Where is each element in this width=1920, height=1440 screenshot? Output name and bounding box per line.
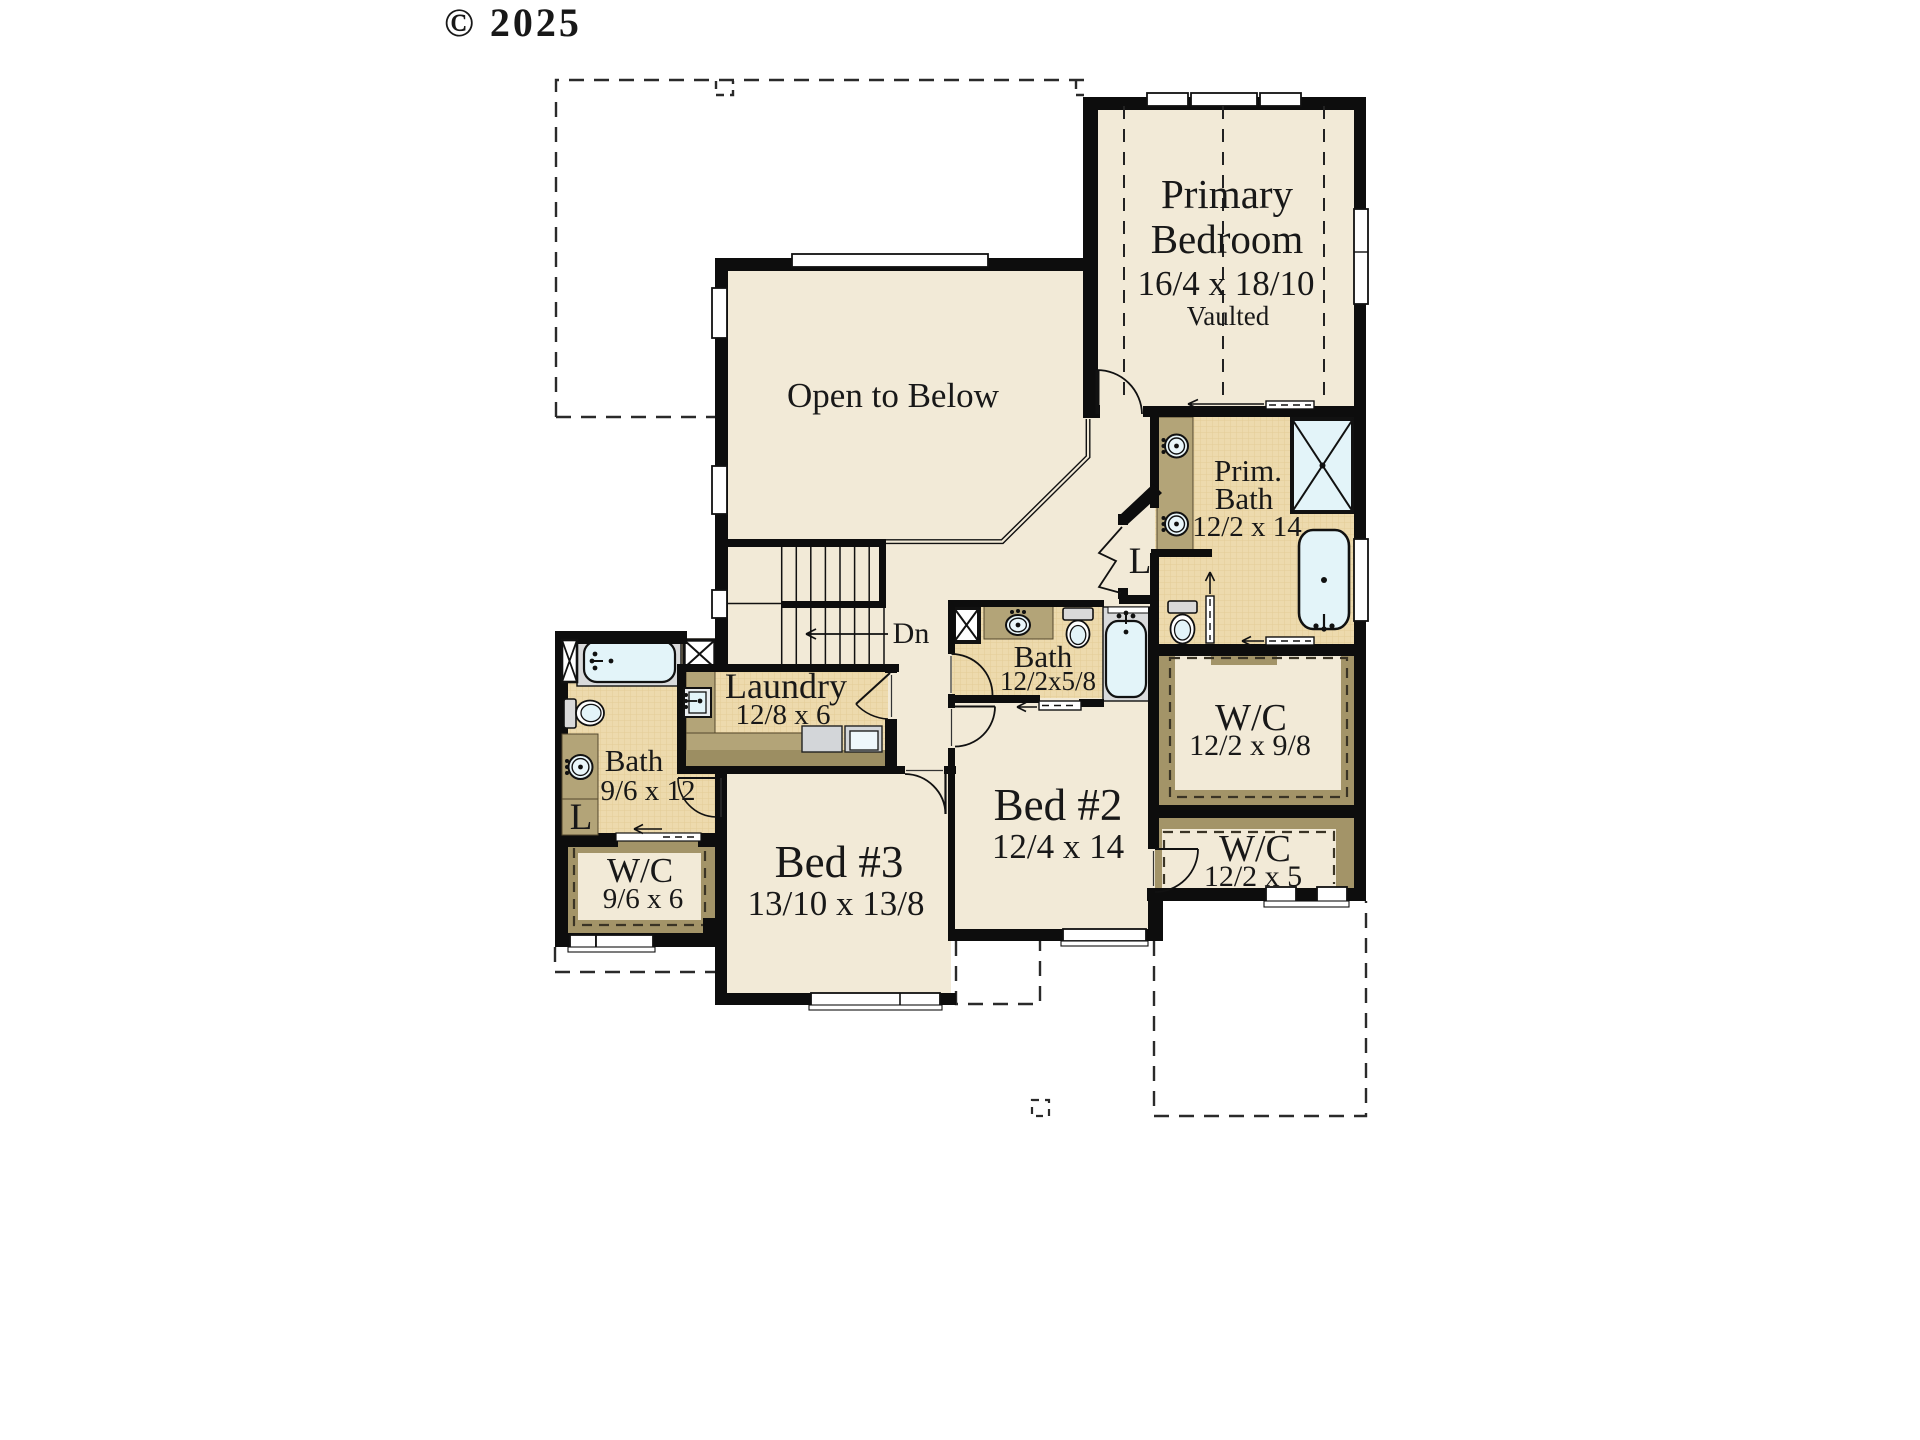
- svg-text:Bed #3: Bed #3: [775, 837, 904, 887]
- svg-text:12/2x5/8: 12/2x5/8: [1000, 666, 1096, 696]
- svg-text:L: L: [570, 797, 593, 838]
- svg-text:© 2025: © 2025: [444, 0, 582, 45]
- svg-text:16/4 x 18/10: 16/4 x 18/10: [1138, 264, 1315, 303]
- svg-text:Bath: Bath: [605, 743, 664, 778]
- svg-text:12/2 x 9/8: 12/2 x 9/8: [1189, 729, 1311, 762]
- svg-text:12/4 x 14: 12/4 x 14: [992, 827, 1124, 866]
- svg-text:Bedroom: Bedroom: [1151, 216, 1304, 262]
- svg-text:Bed #2: Bed #2: [994, 780, 1123, 830]
- svg-text:9/6 x 6: 9/6 x 6: [603, 883, 684, 915]
- svg-text:Open to Below: Open to Below: [787, 376, 1000, 415]
- svg-text:L: L: [1129, 541, 1152, 582]
- svg-text:Vaulted: Vaulted: [1187, 301, 1270, 331]
- svg-text:12/8 x 6: 12/8 x 6: [735, 699, 830, 731]
- svg-text:12/2 x 5: 12/2 x 5: [1204, 860, 1302, 893]
- svg-text:Primary: Primary: [1161, 171, 1294, 217]
- svg-text:Dn: Dn: [893, 617, 930, 650]
- svg-text:9/6 x 12: 9/6 x 12: [600, 775, 695, 807]
- svg-text:12/2 x 14: 12/2 x 14: [1192, 511, 1302, 543]
- svg-text:13/10 x 13/8: 13/10 x 13/8: [748, 884, 925, 923]
